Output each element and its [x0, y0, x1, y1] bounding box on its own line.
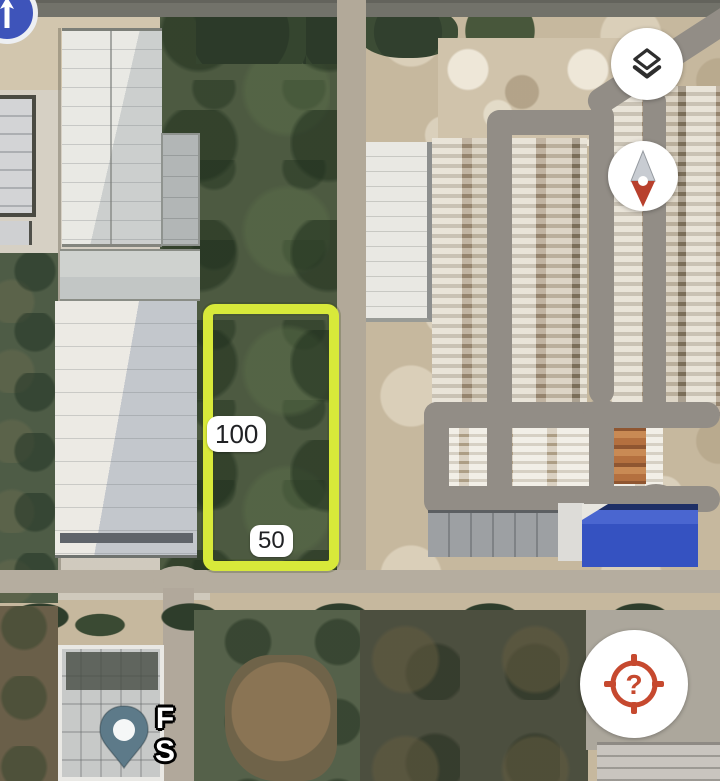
scrub-bottom-left [0, 606, 58, 781]
warehouse-extension [161, 133, 200, 246]
small-building-left [0, 95, 36, 217]
road-main-horizontal [0, 570, 720, 593]
road-vertical-4 [424, 402, 449, 514]
map-pin[interactable] [97, 704, 151, 770]
road-junction [583, 400, 621, 424]
warehouse-roof-upper [62, 28, 162, 247]
roof-tarp-notch [582, 504, 608, 520]
lumber-stacks-east [612, 86, 720, 416]
layers-button[interactable] [611, 28, 683, 100]
road-horizontal-1 [424, 402, 720, 428]
locate-button[interactable]: ? [580, 630, 688, 738]
road-vertical-left [337, 0, 366, 588]
place-label-line1: F [150, 702, 180, 735]
road-junction [480, 400, 518, 424]
white-roof-segment [558, 503, 584, 561]
locate-target-icon: ? [580, 630, 688, 738]
vegetation-strip-left [0, 253, 58, 603]
warehouse-roof-lower [55, 301, 197, 558]
arrow-up-icon [0, 0, 24, 33]
warehouse-connector-roof [60, 249, 200, 301]
plot-length-label: 100 [207, 416, 266, 452]
layers-icon [624, 41, 670, 87]
roof-shadow-band [60, 533, 193, 543]
road-vertical-3 [643, 90, 666, 420]
place-label: F S [150, 702, 180, 768]
scrub-bottom-right [360, 610, 588, 781]
gray-warehouse-roof [428, 510, 560, 557]
compass-button[interactable] [608, 141, 678, 211]
road-vertical-1 [487, 110, 512, 512]
roof-ridge-line [110, 30, 112, 244]
small-building-left-2 [0, 221, 32, 245]
locate-question-glyph: ? [625, 669, 642, 700]
white-warehouse-right [362, 142, 432, 322]
dirt-patch-bottom [225, 655, 337, 781]
map-canvas[interactable]: 100 50 F S [0, 0, 720, 781]
place-label-line2: S [150, 735, 180, 768]
plot-width-label: 50 [250, 525, 293, 557]
building-bottom-right [597, 742, 720, 781]
warehouse-dark-section [66, 652, 158, 690]
compass-needle-icon [608, 141, 678, 211]
